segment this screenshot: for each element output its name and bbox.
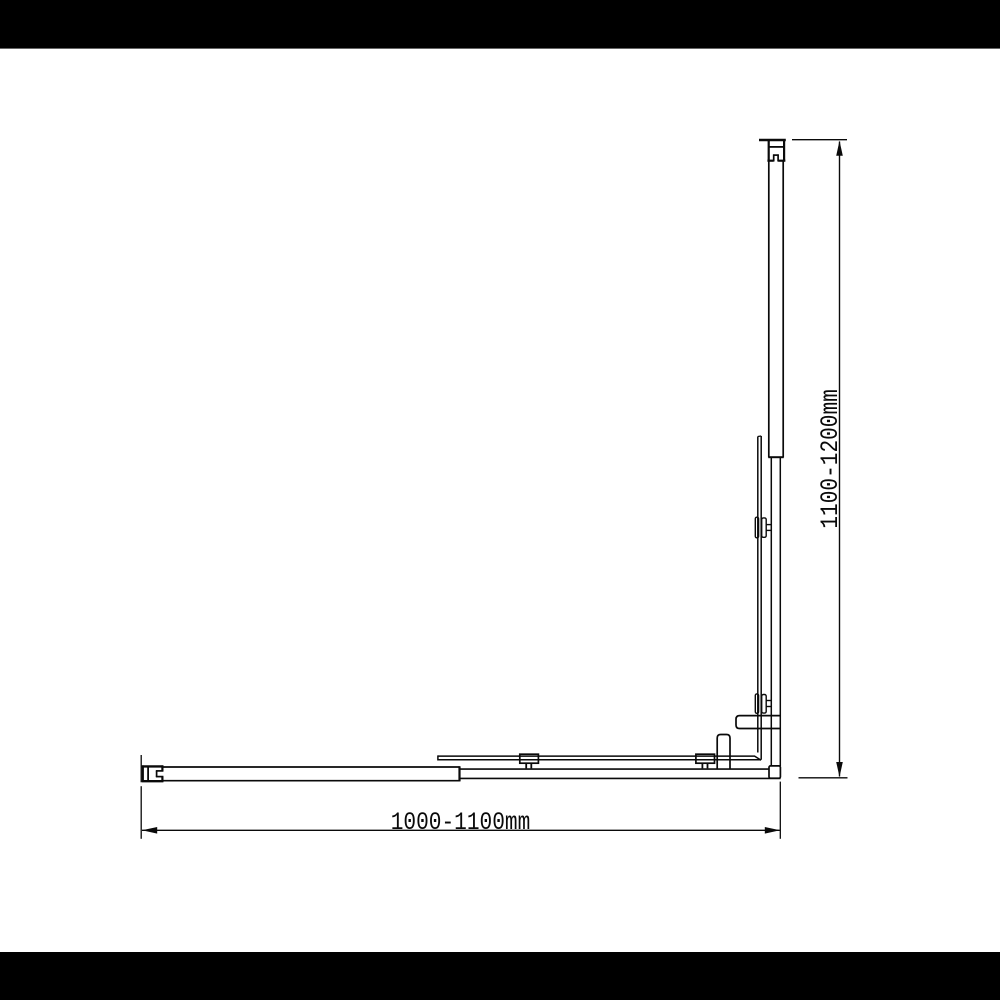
svg-text:1000-1100mm: 1000-1100mm — [391, 808, 531, 837]
svg-text:1100-1200mm: 1100-1200mm — [816, 389, 845, 529]
